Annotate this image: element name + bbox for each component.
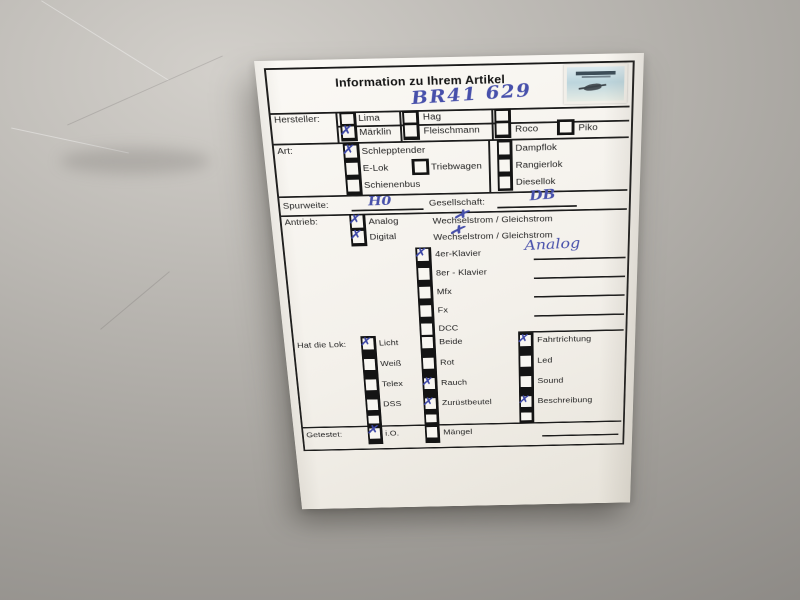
lok-label-fahrtrichtung: Fahrtrichtung	[537, 335, 591, 344]
art-label-elok: E-Lok	[363, 164, 389, 174]
logo-picture-icon	[584, 83, 603, 92]
brand-label-roco: Roco	[515, 124, 538, 134]
antrieb-label-analog: Analog	[368, 217, 398, 227]
art-label-schlepptender: Schlepptender	[361, 146, 425, 157]
spurweite-label: Spurweite:	[282, 201, 329, 211]
logo-subtext-bar	[581, 76, 610, 78]
checkbox-schienenbus	[347, 180, 359, 192]
checkbox-8er-klavier	[418, 268, 430, 280]
handwritten-spurweite: H0	[367, 193, 391, 208]
lok-label-telex: Telex	[382, 380, 404, 388]
checkbox-rangierlok	[499, 159, 510, 171]
decoder-label-mfx: Mfx	[437, 288, 452, 297]
surface-scratch	[41, 0, 169, 80]
check-mark: ✗	[359, 335, 372, 349]
check-mark: ✗	[348, 212, 362, 228]
paper-form: Information zu Ihrem Artikel BR41 629 He…	[254, 53, 644, 509]
check-mark: ✗	[342, 142, 356, 159]
decoder-label-8er: 8er - Klavier	[436, 268, 487, 278]
checkbox-rauch: ✗	[424, 378, 435, 389]
checkbox-beide	[422, 337, 433, 348]
lok-label-licht: Licht	[379, 339, 399, 348]
checkbox-dcc	[421, 323, 432, 334]
checkbox-digital: ✗	[352, 231, 364, 243]
decoder-label-4er: 4er-Klavier	[435, 249, 481, 259]
art-label-schienenbus: Schienenbus	[364, 180, 421, 190]
check-mark: ✗	[349, 227, 363, 243]
checkbox-diesellok	[500, 176, 511, 188]
lok-label-beide: Beide	[439, 338, 463, 347]
check-mark: ✗	[516, 332, 530, 346]
lok-label-zuruestbeutel: Zurüstbeutel	[442, 398, 492, 407]
brand-label-piko: Piko	[578, 123, 597, 133]
brand-label-maerklin: Märklin	[359, 127, 392, 137]
lok-label-weiss: Weiß	[380, 360, 402, 368]
checkbox-empty	[496, 111, 508, 121]
art-label-triebwagen: Triebwagen	[431, 162, 482, 172]
checkbox-maerklin: ✗	[342, 126, 355, 138]
checkbox-roco	[496, 123, 508, 135]
logo-text-bar	[576, 71, 616, 75]
getestet-label-io: i.O.	[385, 430, 399, 438]
getestet-label: Getestet:	[306, 431, 343, 439]
checkbox-piko	[560, 122, 572, 133]
check-mark: ✗	[414, 245, 428, 260]
checkbox-empty	[426, 414, 437, 422]
lok-label-sound: Sound	[537, 377, 563, 385]
checkbox-dampflok	[499, 142, 510, 154]
checkbox-led	[520, 356, 531, 367]
checkbox-zuruestbeutel: ✗	[425, 398, 436, 409]
check-mark: ✗	[517, 393, 531, 407]
photo-shop-logo	[564, 63, 628, 104]
art-label-dampflok: Dampflok	[515, 143, 557, 153]
checkbox-maengel	[427, 427, 438, 438]
lok-label-rauch: Rauch	[441, 379, 467, 387]
brand-label-fleischmann: Fleischmann	[423, 126, 480, 137]
getestet-label-maengel: Mängel	[443, 428, 472, 436]
lok-label: Hat die Lok:	[297, 341, 347, 350]
art-label: Art:	[277, 147, 293, 157]
lok-label-rot: Rot	[440, 359, 455, 367]
hersteller-label: Hersteller:	[274, 115, 321, 126]
brand-label-hag: Hag	[423, 112, 442, 122]
art-label-rangierlok: Rangierlok	[516, 160, 563, 170]
antrieb-label: Antrieb:	[284, 218, 318, 228]
checkbox-elok	[346, 163, 358, 175]
check-mark: ✗	[366, 424, 380, 438]
checkbox-dss	[367, 399, 378, 410]
handwritten-gesellschaft: DB	[529, 186, 556, 204]
lok-label-beschreibung: Beschreibung	[538, 396, 593, 405]
handwritten-note-analog: Analog	[524, 235, 581, 254]
checkbox-4er-klavier: ✗	[417, 249, 429, 261]
decoder-label-dcc: DCC	[438, 324, 458, 333]
checkbox-beschreibung: ✗	[521, 396, 532, 407]
checkbox-hag	[404, 113, 416, 123]
checkbox-licht: ✗	[362, 338, 374, 349]
surface-smudge	[60, 148, 210, 174]
checkbox-fleischmann	[405, 125, 417, 137]
check-mark: ✗	[422, 395, 435, 409]
checkbox-io: ✗	[369, 428, 380, 439]
checkbox-fahrtrichtung: ✗	[520, 335, 531, 346]
check-mark: ✗	[421, 375, 434, 389]
checkbox-fx	[420, 305, 432, 317]
lok-label-dss: DSS	[383, 400, 402, 408]
checkbox-mfx	[419, 287, 431, 299]
checkbox-rot	[423, 358, 434, 369]
checkbox-triebwagen	[414, 161, 426, 172]
brand-label-lima: Lima	[358, 114, 380, 124]
check-mark: ✗	[339, 122, 353, 139]
checkbox-telex	[365, 379, 376, 390]
lok-label-led: Led	[537, 357, 552, 365]
checkbox-sound	[521, 376, 532, 387]
decoder-label-fx: Fx	[438, 306, 449, 315]
surface-scratch	[100, 271, 170, 330]
checkbox-empty	[521, 412, 532, 420]
antrieb-label-digital: Digital	[369, 233, 396, 242]
checkbox-weiss	[364, 359, 376, 370]
checkbox-schlepptender: ✗	[345, 146, 358, 158]
